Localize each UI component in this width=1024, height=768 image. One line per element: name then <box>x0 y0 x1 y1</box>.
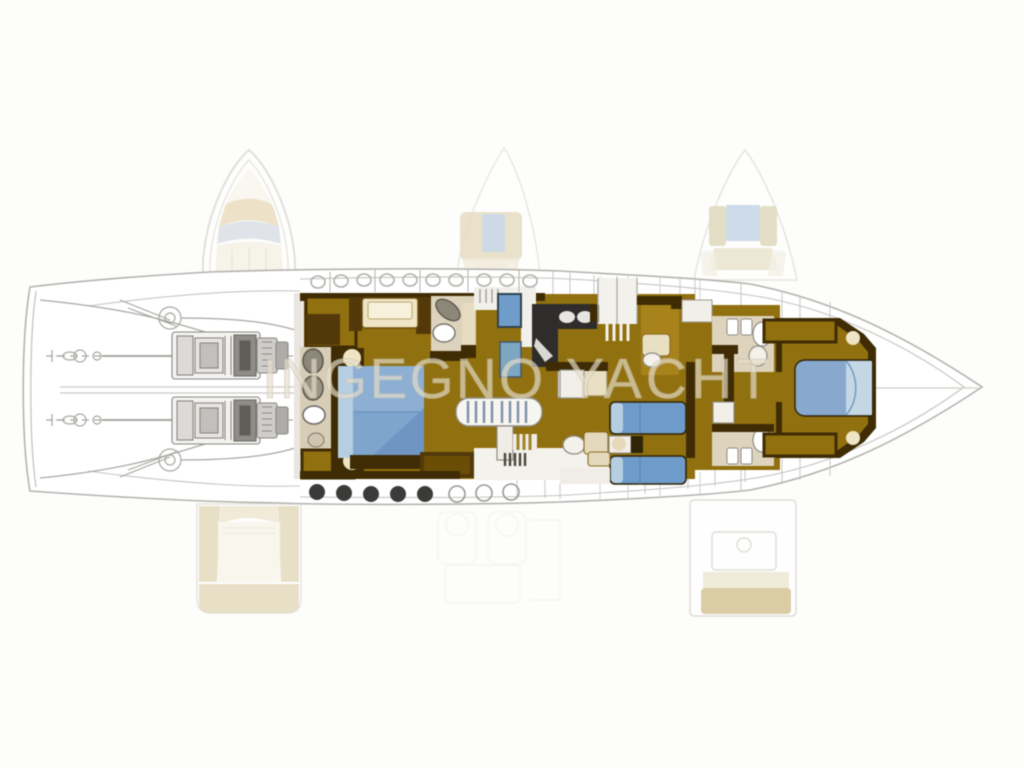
svg-text:YACHT: YACHT <box>566 347 775 411</box>
svg-text:INGEGNO: INGEGNO <box>262 347 545 411</box>
